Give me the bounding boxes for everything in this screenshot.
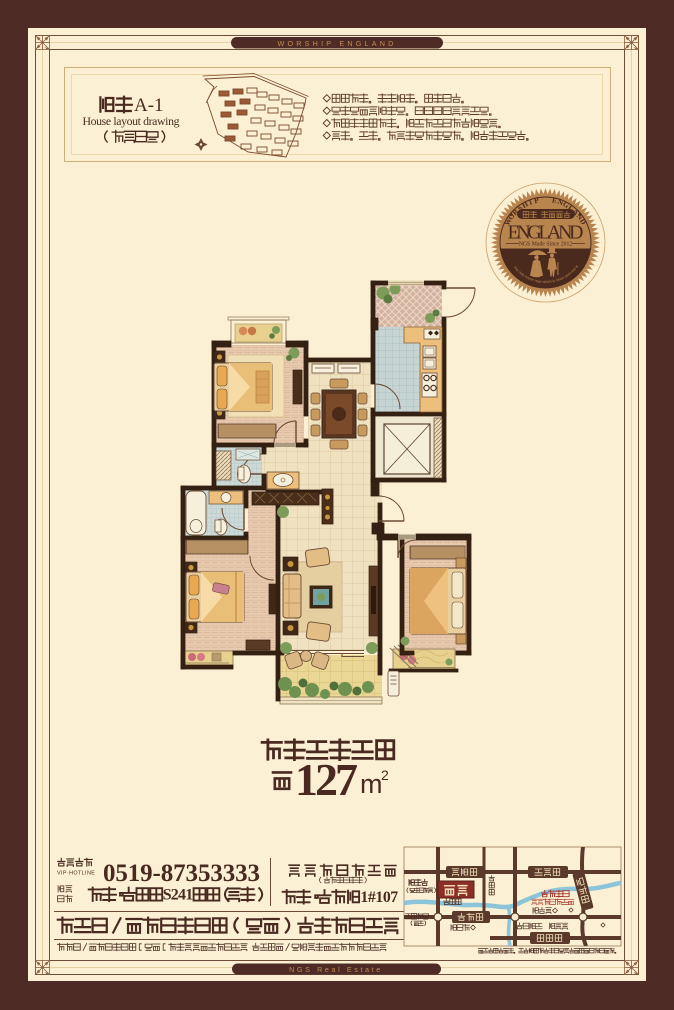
svg-text:127: 127	[295, 754, 358, 805]
svg-text:A-1: A-1	[134, 95, 164, 116]
svg-text:NGS Real Estate: NGS Real Estate	[289, 965, 383, 974]
svg-text:S241: S241	[163, 887, 194, 904]
svg-text:1#107: 1#107	[360, 889, 398, 906]
svg-text:NGS Made Since 2012: NGS Made Since 2012	[519, 242, 573, 248]
svg-text:House layout drawing: House layout drawing	[83, 114, 180, 128]
svg-text:2: 2	[381, 767, 389, 783]
svg-text:WORSHIP ENGLAND: WORSHIP ENGLAND	[278, 39, 397, 48]
svg-text:0519-87353333: 0519-87353333	[103, 860, 260, 887]
svg-text:VIP·HOTLINE: VIP·HOTLINE	[57, 871, 95, 877]
svg-text:m: m	[360, 769, 383, 799]
svg-text:ENGLAND: ENGLAND	[508, 222, 584, 244]
